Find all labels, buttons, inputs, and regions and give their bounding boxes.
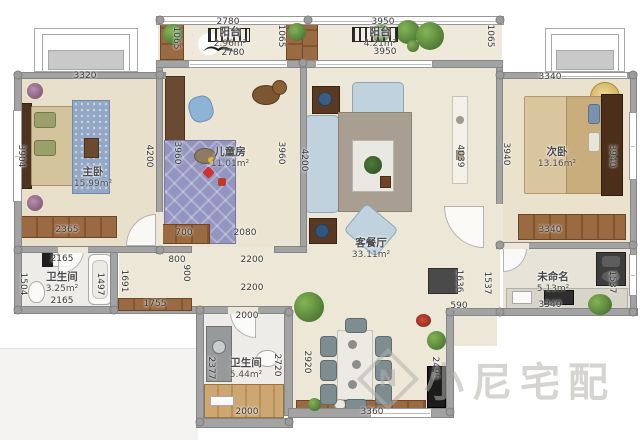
room-area: 3.25m² <box>46 284 78 295</box>
wall-master-bath1 <box>14 246 166 253</box>
dim-bath1-top: 2165 <box>51 254 74 264</box>
floor-plan: 主卧 15.99m² 儿童房 11.01m² 客餐厅 33.11m² 次卧 13… <box>0 0 640 440</box>
dim-entry-wall: 590 <box>450 301 467 311</box>
dim-hall-2000: 2000 <box>236 311 259 321</box>
room-label-kids: 儿童房 11.01m² <box>211 146 249 170</box>
master-bench[interactable] <box>84 138 99 158</box>
room-label-kitchen: 未命名 5.13m² <box>537 271 569 295</box>
wall-column <box>196 418 205 427</box>
wall-bath2-bottom <box>196 418 293 428</box>
window-living-top <box>315 60 433 68</box>
wall-column <box>629 241 638 250</box>
dim-kids-left: 3960 <box>172 142 182 165</box>
dining-chair[interactable] <box>320 336 337 357</box>
dim-second-left: 3940 <box>501 143 511 166</box>
dim-bath1-right: 1497 <box>95 273 105 296</box>
wall-column <box>156 16 165 25</box>
wall-column <box>196 306 205 315</box>
dim-balcony1-col-left: 1065 <box>171 27 181 50</box>
wall-column <box>496 308 505 317</box>
sideboard-plant-icon <box>308 398 321 411</box>
table-plant-icon <box>364 156 382 174</box>
door-opening-bath1 <box>58 247 88 253</box>
dim-kids-right: 3960 <box>276 142 286 165</box>
watermark-brand: 小尼宅配 <box>424 350 616 408</box>
teddy-bear-head-icon <box>272 80 287 95</box>
dim-kids-cabinet: 700 <box>175 228 192 238</box>
dining-chair[interactable] <box>320 360 337 381</box>
wall-column <box>285 418 294 427</box>
toilet[interactable] <box>28 281 45 303</box>
room-area: 5.13m² <box>537 284 569 295</box>
room-name: 次卧 <box>538 146 576 159</box>
wall-column <box>14 246 23 255</box>
master-bed-pillow <box>34 140 56 156</box>
window-kids-top <box>188 60 288 68</box>
dim-entry-door: 1636 <box>454 270 464 293</box>
secondary-wardrobe[interactable] <box>518 214 626 240</box>
dining-plate <box>348 380 357 389</box>
wall-kids-bottom-right <box>274 246 307 253</box>
room-label-bath1: 卫生间 3.25m² <box>46 271 78 295</box>
dim-dining-bottom: 3360 <box>361 407 384 417</box>
door-opening-master <box>156 212 163 246</box>
flower-plant-icon <box>27 83 43 99</box>
dim-balcony1-col-right: 1065 <box>276 25 286 48</box>
dim-balcony1-top: 2780 <box>217 17 240 27</box>
dim-master-wardrobe: 2365 <box>56 225 79 235</box>
room-name: 阳台 <box>364 26 396 39</box>
toy-pinwheel-red <box>218 178 226 186</box>
shower-tray <box>210 396 234 406</box>
dim-balcony2-top: 3950 <box>372 17 395 27</box>
dim-bath2-right: 2720 <box>272 354 282 377</box>
watermark-logo-letter: N <box>379 366 397 391</box>
dim-kitchen-left: 1537 <box>482 272 492 295</box>
dim-bath2-left: 2377 <box>206 357 216 380</box>
wall-column <box>156 246 165 255</box>
room-name: 卫生间 <box>230 357 262 370</box>
entry-plant-icon <box>427 331 446 350</box>
dim-second-wardrobe: 3340 <box>539 225 562 235</box>
room-name: 主卧 <box>74 166 112 179</box>
living-sofa[interactable] <box>305 115 339 213</box>
master-bed-pillow <box>34 112 56 128</box>
room-label-living: 客餐厅 33.11m² <box>352 237 390 261</box>
balcony2-plant-icon <box>416 22 444 50</box>
dim-kids-bottom: 2080 <box>234 228 257 238</box>
dim-hall-width: 1691 <box>119 270 129 293</box>
dim-kitchen-right: 1537 <box>607 271 617 294</box>
window-kitchen-right <box>629 254 637 296</box>
room-label-bath2: 卫生间 5.44m² <box>230 357 262 381</box>
door-opening-kitchen <box>503 243 529 249</box>
kids-desk[interactable] <box>165 76 185 144</box>
room-name: 卫生间 <box>46 271 78 284</box>
window-secondary-right <box>629 112 637 180</box>
decor-bowl-blue <box>318 92 332 106</box>
kitchen-plant-icon <box>588 294 612 315</box>
wall-column <box>304 16 313 25</box>
door-opening-secondary <box>496 204 503 242</box>
wall-column <box>14 306 23 315</box>
room-label-master: 主卧 15.99m² <box>74 166 112 190</box>
wall-column <box>14 71 23 80</box>
dim-balcony2-bottom: 3950 <box>374 47 397 57</box>
decor-tray <box>380 176 391 188</box>
room-label-balcony1: 阳台 2.96m² <box>214 26 246 50</box>
passage-kids-bottom <box>192 247 274 253</box>
wall-column <box>629 308 638 317</box>
dim-balcony2-col-right: 1065 <box>485 25 495 48</box>
dim-balcony1-bottom: 2780 <box>222 48 245 58</box>
dim-master-left: 3904 <box>16 145 26 168</box>
wall-column <box>629 71 638 80</box>
dim-second-top: 3340 <box>539 72 562 82</box>
dim-hall-900: 900 <box>181 264 191 281</box>
wall-column <box>496 16 505 25</box>
dim-living-right: 4039 <box>455 145 465 168</box>
secondary-pillow <box>588 104 600 124</box>
dim-master-right: 4200 <box>144 145 154 168</box>
room-area: 5.44m² <box>230 370 262 381</box>
room-area: 15.99m² <box>74 179 112 190</box>
room-area: 13.16m² <box>538 159 576 170</box>
wall-bath2-dining <box>284 312 293 416</box>
watermark: N 小尼宅配 <box>366 350 616 408</box>
wall-column <box>496 71 505 80</box>
dim-bath1-left: 1504 <box>18 273 28 296</box>
wall-bath1-hall <box>110 252 118 312</box>
room-name: 阳台 <box>214 26 246 39</box>
sink-basin <box>602 256 620 267</box>
room-name: 客餐厅 <box>352 237 390 250</box>
tv-console[interactable] <box>452 96 468 184</box>
wall-bath1-bottom <box>14 306 118 314</box>
room-area: 11.01m² <box>211 159 249 170</box>
dining-chair[interactable] <box>320 384 337 405</box>
washer-door <box>212 340 226 354</box>
wall-bath2-left <box>196 312 204 420</box>
dim-bath1-bottom: 2165 <box>51 296 74 306</box>
dim-bath2-bottom: 2000 <box>236 407 259 417</box>
room-name: 儿童房 <box>211 146 249 159</box>
dim-hall-cabinet: 1755 <box>144 299 167 309</box>
dim-dining-left: 2920 <box>302 351 312 374</box>
plant-icon <box>294 292 324 322</box>
flower-red-icon <box>416 314 431 327</box>
bay-window-secondary-sill <box>556 50 614 70</box>
wall-column <box>446 408 455 417</box>
wall-column <box>496 241 505 250</box>
balcony2-plant-icon <box>407 40 419 52</box>
dining-plate <box>348 340 357 349</box>
watermark-logo-icon: N <box>357 348 419 410</box>
dim-hall-2200b: 2200 <box>241 283 264 293</box>
dining-chair[interactable] <box>345 318 367 333</box>
dim-second-right: 3940 <box>607 145 617 168</box>
secondary-pillow <box>588 132 600 152</box>
flower-plant-icon <box>27 195 43 211</box>
decor-bowl-blue <box>315 224 329 238</box>
room-label-secondary: 次卧 13.16m² <box>538 146 576 170</box>
wall-column <box>299 59 308 68</box>
dim-hall-2200a: 2200 <box>241 255 264 265</box>
dim-living-left: 4200 <box>299 149 309 172</box>
console-decor <box>456 116 464 124</box>
dim-kitchen-counter: 3340 <box>539 300 562 310</box>
bay-window-master-sill <box>48 50 124 70</box>
kitchen-appliance <box>512 291 532 304</box>
exterior-area-bottom-left <box>0 348 198 440</box>
wall-column <box>285 308 294 317</box>
room-name: 未命名 <box>537 271 569 284</box>
dining-plate <box>352 360 361 369</box>
balcony1-plant-icon <box>288 23 306 41</box>
wall-column <box>110 306 119 315</box>
dim-master-top: 3320 <box>74 71 97 81</box>
room-area: 33.11m² <box>352 250 390 261</box>
wall-column <box>156 71 165 80</box>
